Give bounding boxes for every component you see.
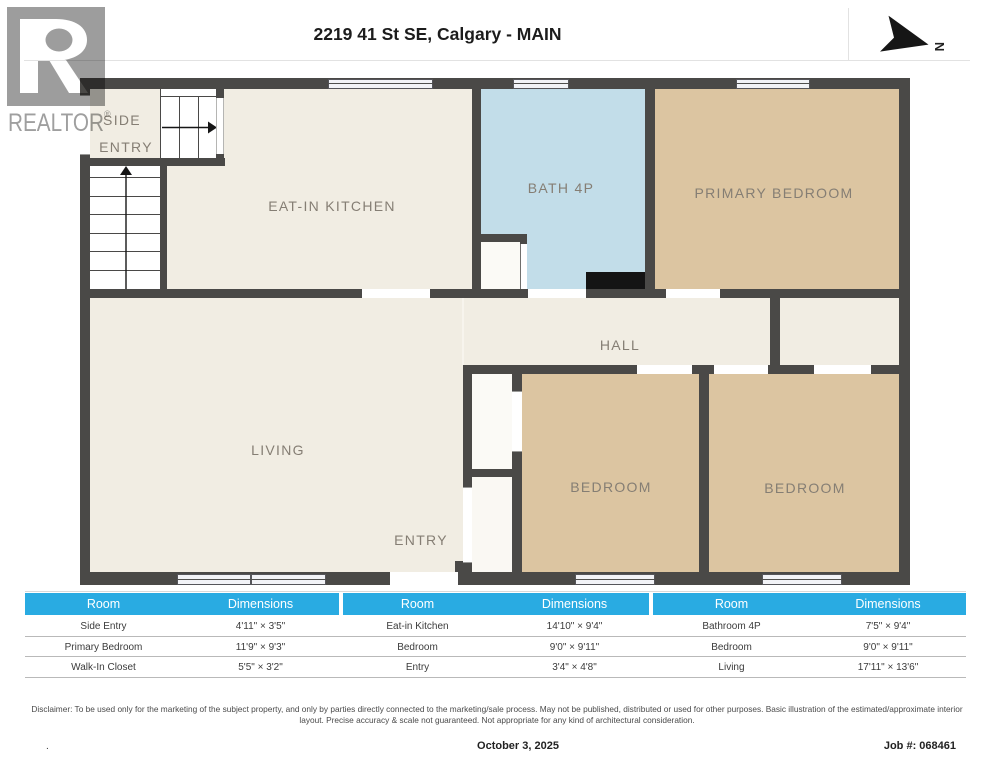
svg-text:N: N xyxy=(932,42,947,51)
svg-text:®: ® xyxy=(104,109,111,119)
svg-text:REALTOR: REALTOR xyxy=(8,109,104,137)
